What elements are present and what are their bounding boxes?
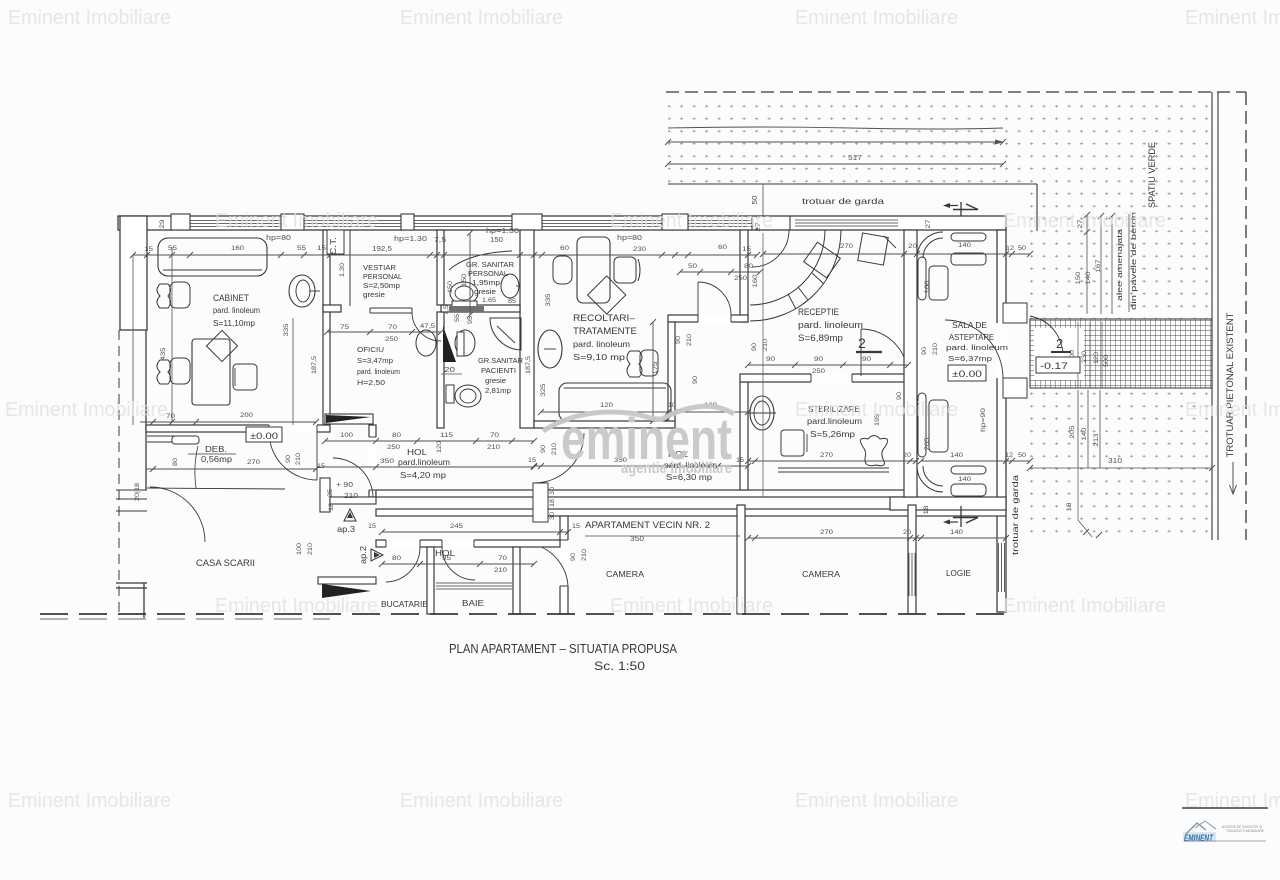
svg-text:Eminent Imobiliare: Eminent Imobiliare: [1003, 595, 1166, 617]
svg-text:30: 30: [550, 511, 556, 520]
svg-text:70: 70: [490, 432, 499, 439]
svg-text:TROTUAR PIETONAL EXISTENT: TROTUAR PIETONAL EXISTENT: [1225, 312, 1235, 458]
svg-text:CABINET: CABINET: [213, 293, 249, 303]
svg-text:120: 120: [1094, 351, 1100, 364]
svg-text:C.T.: C.T.: [329, 237, 338, 255]
svg-text:15: 15: [572, 524, 581, 530]
svg-text:DEB.: DEB.: [205, 445, 227, 454]
svg-text:pard. linoleum: pard. linoleum: [357, 367, 400, 376]
svg-text:15: 15: [144, 246, 153, 253]
svg-text:ASTEPTARE: ASTEPTARE: [949, 333, 994, 342]
svg-text:335: 335: [545, 293, 552, 306]
svg-text:140: 140: [950, 529, 963, 536]
svg-text:hp=1.30: hp=1.30: [486, 226, 519, 235]
svg-text:±0.00: ±0.00: [250, 431, 278, 441]
svg-text:210: 210: [494, 567, 507, 574]
svg-text:50: 50: [752, 195, 759, 204]
svg-text:90: 90: [862, 356, 871, 363]
svg-text:70: 70: [388, 324, 397, 331]
svg-text:140: 140: [958, 242, 971, 249]
svg-text:Eminent Imobiliare: Eminent Imobiliare: [1185, 399, 1280, 421]
svg-text:205: 205: [1069, 425, 1076, 438]
svg-text:18: 18: [1066, 502, 1073, 511]
svg-text:175: 175: [652, 361, 659, 374]
svg-text:Eminent Imobiliare: Eminent Imobiliare: [5, 399, 168, 421]
svg-text:18: 18: [550, 498, 556, 507]
svg-text:100: 100: [340, 432, 353, 439]
svg-text:1.30: 1.30: [340, 262, 346, 277]
svg-text:90: 90: [676, 335, 682, 344]
svg-text:140: 140: [1085, 271, 1092, 284]
svg-text:SPATIU VERDE: SPATIU VERDE: [1147, 142, 1157, 208]
svg-text:hp=90: hp=90: [980, 408, 987, 432]
svg-text:18: 18: [329, 502, 335, 511]
svg-text:140: 140: [950, 452, 963, 459]
svg-text:50: 50: [1018, 246, 1027, 252]
svg-text:Eminent Imobiliare: Eminent Imobiliare: [610, 595, 773, 617]
svg-text:BAIE: BAIE: [462, 599, 484, 608]
svg-text:GR. SANITAR: GR. SANITAR: [466, 262, 514, 269]
svg-text:APARTAMENT VECIN NR. 2: APARTAMENT VECIN NR. 2: [585, 520, 710, 530]
svg-text:120: 120: [437, 440, 443, 453]
svg-text:15: 15: [528, 458, 537, 464]
svg-text:trotuar de garda: trotuar de garda: [1010, 475, 1020, 555]
svg-text:325: 325: [540, 383, 547, 396]
svg-text:agentie imobiliare: agentie imobiliare: [621, 460, 732, 477]
svg-text:335: 335: [283, 323, 290, 336]
svg-text:90: 90: [693, 375, 699, 384]
svg-text:S=6,37mp: S=6,37mp: [948, 354, 992, 363]
svg-text:CAMERA: CAMERA: [802, 569, 840, 579]
svg-text:RECOLTARI–: RECOLTARI–: [573, 313, 635, 323]
svg-text:CAMERA: CAMERA: [606, 569, 644, 579]
svg-text:gresie: gresie: [363, 292, 385, 299]
svg-text:167: 167: [1095, 259, 1102, 272]
svg-text:80: 80: [744, 263, 753, 270]
svg-text:12: 12: [1006, 246, 1015, 252]
svg-text:210: 210: [487, 444, 500, 451]
svg-text:160: 160: [752, 274, 759, 287]
svg-text:50: 50: [1018, 453, 1027, 459]
svg-text:47,5: 47,5: [420, 323, 435, 330]
svg-text:80: 80: [392, 555, 401, 562]
svg-text:pard. linoleum: pard. linoleum: [946, 343, 1008, 352]
svg-text:55: 55: [168, 245, 177, 252]
svg-text:50: 50: [688, 263, 697, 270]
svg-text:ap.3: ap.3: [337, 524, 355, 534]
svg-text:Sc. 1:50: Sc. 1:50: [594, 661, 645, 673]
svg-text:160: 160: [924, 280, 931, 293]
svg-text:210: 210: [582, 548, 588, 561]
svg-text:210: 210: [552, 442, 558, 455]
svg-text:30: 30: [550, 486, 556, 495]
svg-text:250: 250: [812, 368, 825, 375]
svg-text:Eminent Imobiliare: Eminent Imobiliare: [215, 595, 378, 617]
svg-text:18: 18: [923, 505, 930, 514]
svg-text:230: 230: [1082, 350, 1088, 363]
svg-text:pard. linoleum: pard. linoleum: [573, 339, 630, 349]
svg-text:PLAN APARTAMENT – SITUATIA: PLAN APARTAMENT – SITUATIA PROPUSA: [449, 642, 678, 656]
svg-text:150: 150: [448, 280, 454, 293]
svg-text:Eminent Imobiliare: Eminent Imobiliare: [400, 7, 563, 29]
svg-text:15: 15: [368, 524, 377, 530]
svg-text:7,5: 7,5: [434, 237, 446, 244]
svg-text:85: 85: [508, 299, 517, 305]
svg-text:ap.2: ap.2: [358, 546, 368, 564]
svg-text:Eminent Imobiliare: Eminent Imobiliare: [1003, 210, 1166, 232]
svg-text:TRATAMENTE: TRATAMENTE: [573, 326, 637, 336]
svg-text:pard. linoleum: pard. linoleum: [798, 320, 863, 330]
svg-text:210: 210: [308, 542, 314, 555]
svg-text:90: 90: [766, 356, 775, 363]
svg-text:Eminent Imobiliare: Eminent Imobiliare: [400, 790, 563, 812]
svg-text:95: 95: [442, 555, 451, 562]
svg-text:250: 250: [734, 275, 747, 282]
svg-text:Eminent Imobiliare: Eminent Imobiliare: [8, 7, 171, 29]
svg-text:S=5,26mp: S=5,26mp: [810, 430, 856, 439]
svg-text:hp=80: hp=80: [617, 233, 642, 242]
svg-text:150: 150: [1075, 271, 1082, 284]
svg-text:HOL: HOL: [407, 447, 427, 457]
svg-text:+ 90: + 90: [336, 482, 353, 489]
svg-text:29: 29: [159, 219, 166, 228]
svg-text:S=6,89mp: S=6,89mp: [798, 333, 843, 343]
svg-text:517: 517: [848, 153, 862, 162]
svg-text:192,5: 192,5: [372, 246, 392, 253]
svg-text:100: 100: [297, 542, 303, 555]
svg-text:GR.SANITAR: GR.SANITAR: [478, 356, 524, 365]
svg-text:VESTIAR: VESTIAR: [363, 265, 396, 272]
svg-text:alee amenajata: alee amenajata: [1115, 228, 1124, 301]
svg-text:2: 2: [858, 335, 866, 351]
svg-text:210: 210: [763, 338, 769, 351]
svg-text:35: 35: [328, 488, 334, 497]
svg-text:LOGIE: LOGIE: [946, 568, 971, 578]
svg-text:S=11,10mp: S=11,10mp: [213, 319, 256, 328]
svg-text:270: 270: [247, 459, 260, 466]
svg-text:20|18: 20|18: [135, 482, 141, 501]
svg-text:S=2,50mp: S=2,50mp: [363, 283, 400, 290]
svg-text:±0.00: ±0.00: [952, 369, 982, 379]
svg-text:60: 60: [718, 244, 727, 251]
svg-text:160: 160: [231, 245, 244, 252]
svg-text:EMINENT: EMINENT: [1184, 833, 1214, 843]
svg-text:H=2,50: H=2,50: [357, 378, 385, 387]
svg-text:OFICIU: OFICIU: [357, 345, 384, 354]
svg-text:230: 230: [633, 246, 646, 253]
svg-text:90: 90: [541, 444, 547, 453]
svg-text:250: 250: [385, 336, 398, 343]
svg-text:S=4,20 mp: S=4,20 mp: [400, 471, 447, 480]
svg-text:1,95mp: 1,95mp: [472, 280, 500, 287]
svg-text:55: 55: [455, 313, 461, 322]
svg-text:gresie: gresie: [485, 376, 506, 385]
svg-text:270: 270: [840, 243, 853, 250]
svg-text:TRANZACTII IMOBILIARE: TRANZACTII IMOBILIARE: [1226, 829, 1264, 833]
svg-text:200: 200: [240, 412, 253, 419]
svg-text:60: 60: [560, 245, 569, 252]
svg-text:55: 55: [297, 245, 306, 252]
svg-text:pard. linoleum: pard. linoleum: [213, 306, 260, 315]
svg-text:15: 15: [742, 246, 751, 253]
svg-text:20: 20: [444, 365, 455, 374]
svg-text:90: 90: [571, 552, 577, 561]
svg-text:pard.linoleum: pard.linoleum: [398, 458, 450, 467]
svg-text:PERSONAL: PERSONAL: [468, 271, 508, 278]
svg-text:187,5: 187,5: [526, 355, 532, 374]
svg-text:210: 210: [687, 333, 693, 346]
svg-text:90: 90: [286, 454, 292, 463]
svg-text:80: 80: [392, 432, 401, 439]
svg-text:140: 140: [1081, 427, 1088, 440]
svg-text:15: 15: [736, 458, 745, 464]
svg-text:RECEPTIE: RECEPTIE: [798, 307, 839, 318]
svg-text:187,5: 187,5: [312, 355, 318, 374]
svg-text:hp=1.30: hp=1.30: [394, 234, 427, 243]
svg-text:20: 20: [903, 530, 912, 536]
svg-text:PACIENTI: PACIENTI: [481, 366, 516, 375]
svg-text:Eminent Imobiliare: Eminent Imobiliare: [1185, 7, 1280, 29]
svg-text:150: 150: [490, 237, 503, 244]
svg-text:90: 90: [922, 346, 928, 355]
svg-text:20: 20: [903, 453, 912, 459]
svg-text:2,81mp: 2,81mp: [485, 386, 511, 395]
svg-text:70: 70: [498, 555, 507, 562]
svg-text:500: 500: [1104, 354, 1110, 367]
svg-text:435: 435: [160, 347, 167, 360]
svg-text:-0.17: -0.17: [1040, 361, 1068, 372]
svg-text:205: 205: [924, 437, 931, 450]
svg-text:310: 310: [1108, 458, 1122, 465]
svg-text:210: 210: [344, 493, 358, 500]
svg-text:350: 350: [380, 458, 394, 465]
svg-text:270: 270: [820, 529, 833, 536]
svg-text:CASA SCARII: CASA SCARII: [196, 558, 255, 568]
svg-text:27: 27: [925, 219, 932, 228]
svg-text:1.65: 1.65: [482, 297, 496, 304]
svg-text:115: 115: [440, 432, 453, 439]
svg-text:12: 12: [1005, 453, 1014, 459]
svg-text:Eminent Imobiliare: Eminent Imobiliare: [795, 399, 958, 421]
svg-text:hp=80: hp=80: [266, 233, 291, 242]
svg-text:Eminent Imobiliare: Eminent Imobiliare: [215, 210, 378, 232]
svg-text:PERSONAL: PERSONAL: [363, 274, 402, 281]
svg-text:210: 210: [296, 452, 302, 465]
svg-text:Eminent Imobiliare: Eminent Imobiliare: [795, 790, 958, 812]
svg-text:90: 90: [814, 356, 823, 363]
svg-text:75: 75: [340, 324, 349, 331]
svg-text:210: 210: [933, 342, 939, 355]
svg-text:BUCATARIE: BUCATARIE: [381, 600, 428, 609]
svg-text:Eminent Imobiliare: Eminent Imobiliare: [795, 7, 958, 29]
svg-text:0,56mp: 0,56mp: [201, 455, 233, 464]
svg-text:7,5: 7,5: [444, 304, 450, 315]
svg-text:213: 213: [1093, 433, 1100, 446]
svg-text:S=3,47mp: S=3,47mp: [357, 356, 393, 365]
svg-text:140: 140: [958, 476, 971, 483]
svg-text:150: 150: [461, 273, 468, 286]
svg-text:15: 15: [317, 245, 326, 252]
svg-text:350: 350: [630, 536, 644, 543]
svg-text:Eminent Imobiliare: Eminent Imobiliare: [8, 790, 171, 812]
svg-text:20: 20: [908, 243, 917, 250]
svg-text:250: 250: [387, 444, 400, 451]
svg-text:S=9,10 mp: S=9,10 mp: [573, 352, 625, 362]
svg-text:SALA DE: SALA DE: [952, 321, 987, 330]
svg-text:270: 270: [820, 452, 833, 459]
svg-text:Eminent Imobiliare: Eminent Imobiliare: [610, 210, 773, 232]
svg-text:245: 245: [450, 523, 463, 530]
svg-text:90: 90: [752, 342, 758, 351]
svg-text:80: 80: [173, 457, 179, 466]
svg-text:trotuar de garda: trotuar de garda: [802, 196, 884, 206]
